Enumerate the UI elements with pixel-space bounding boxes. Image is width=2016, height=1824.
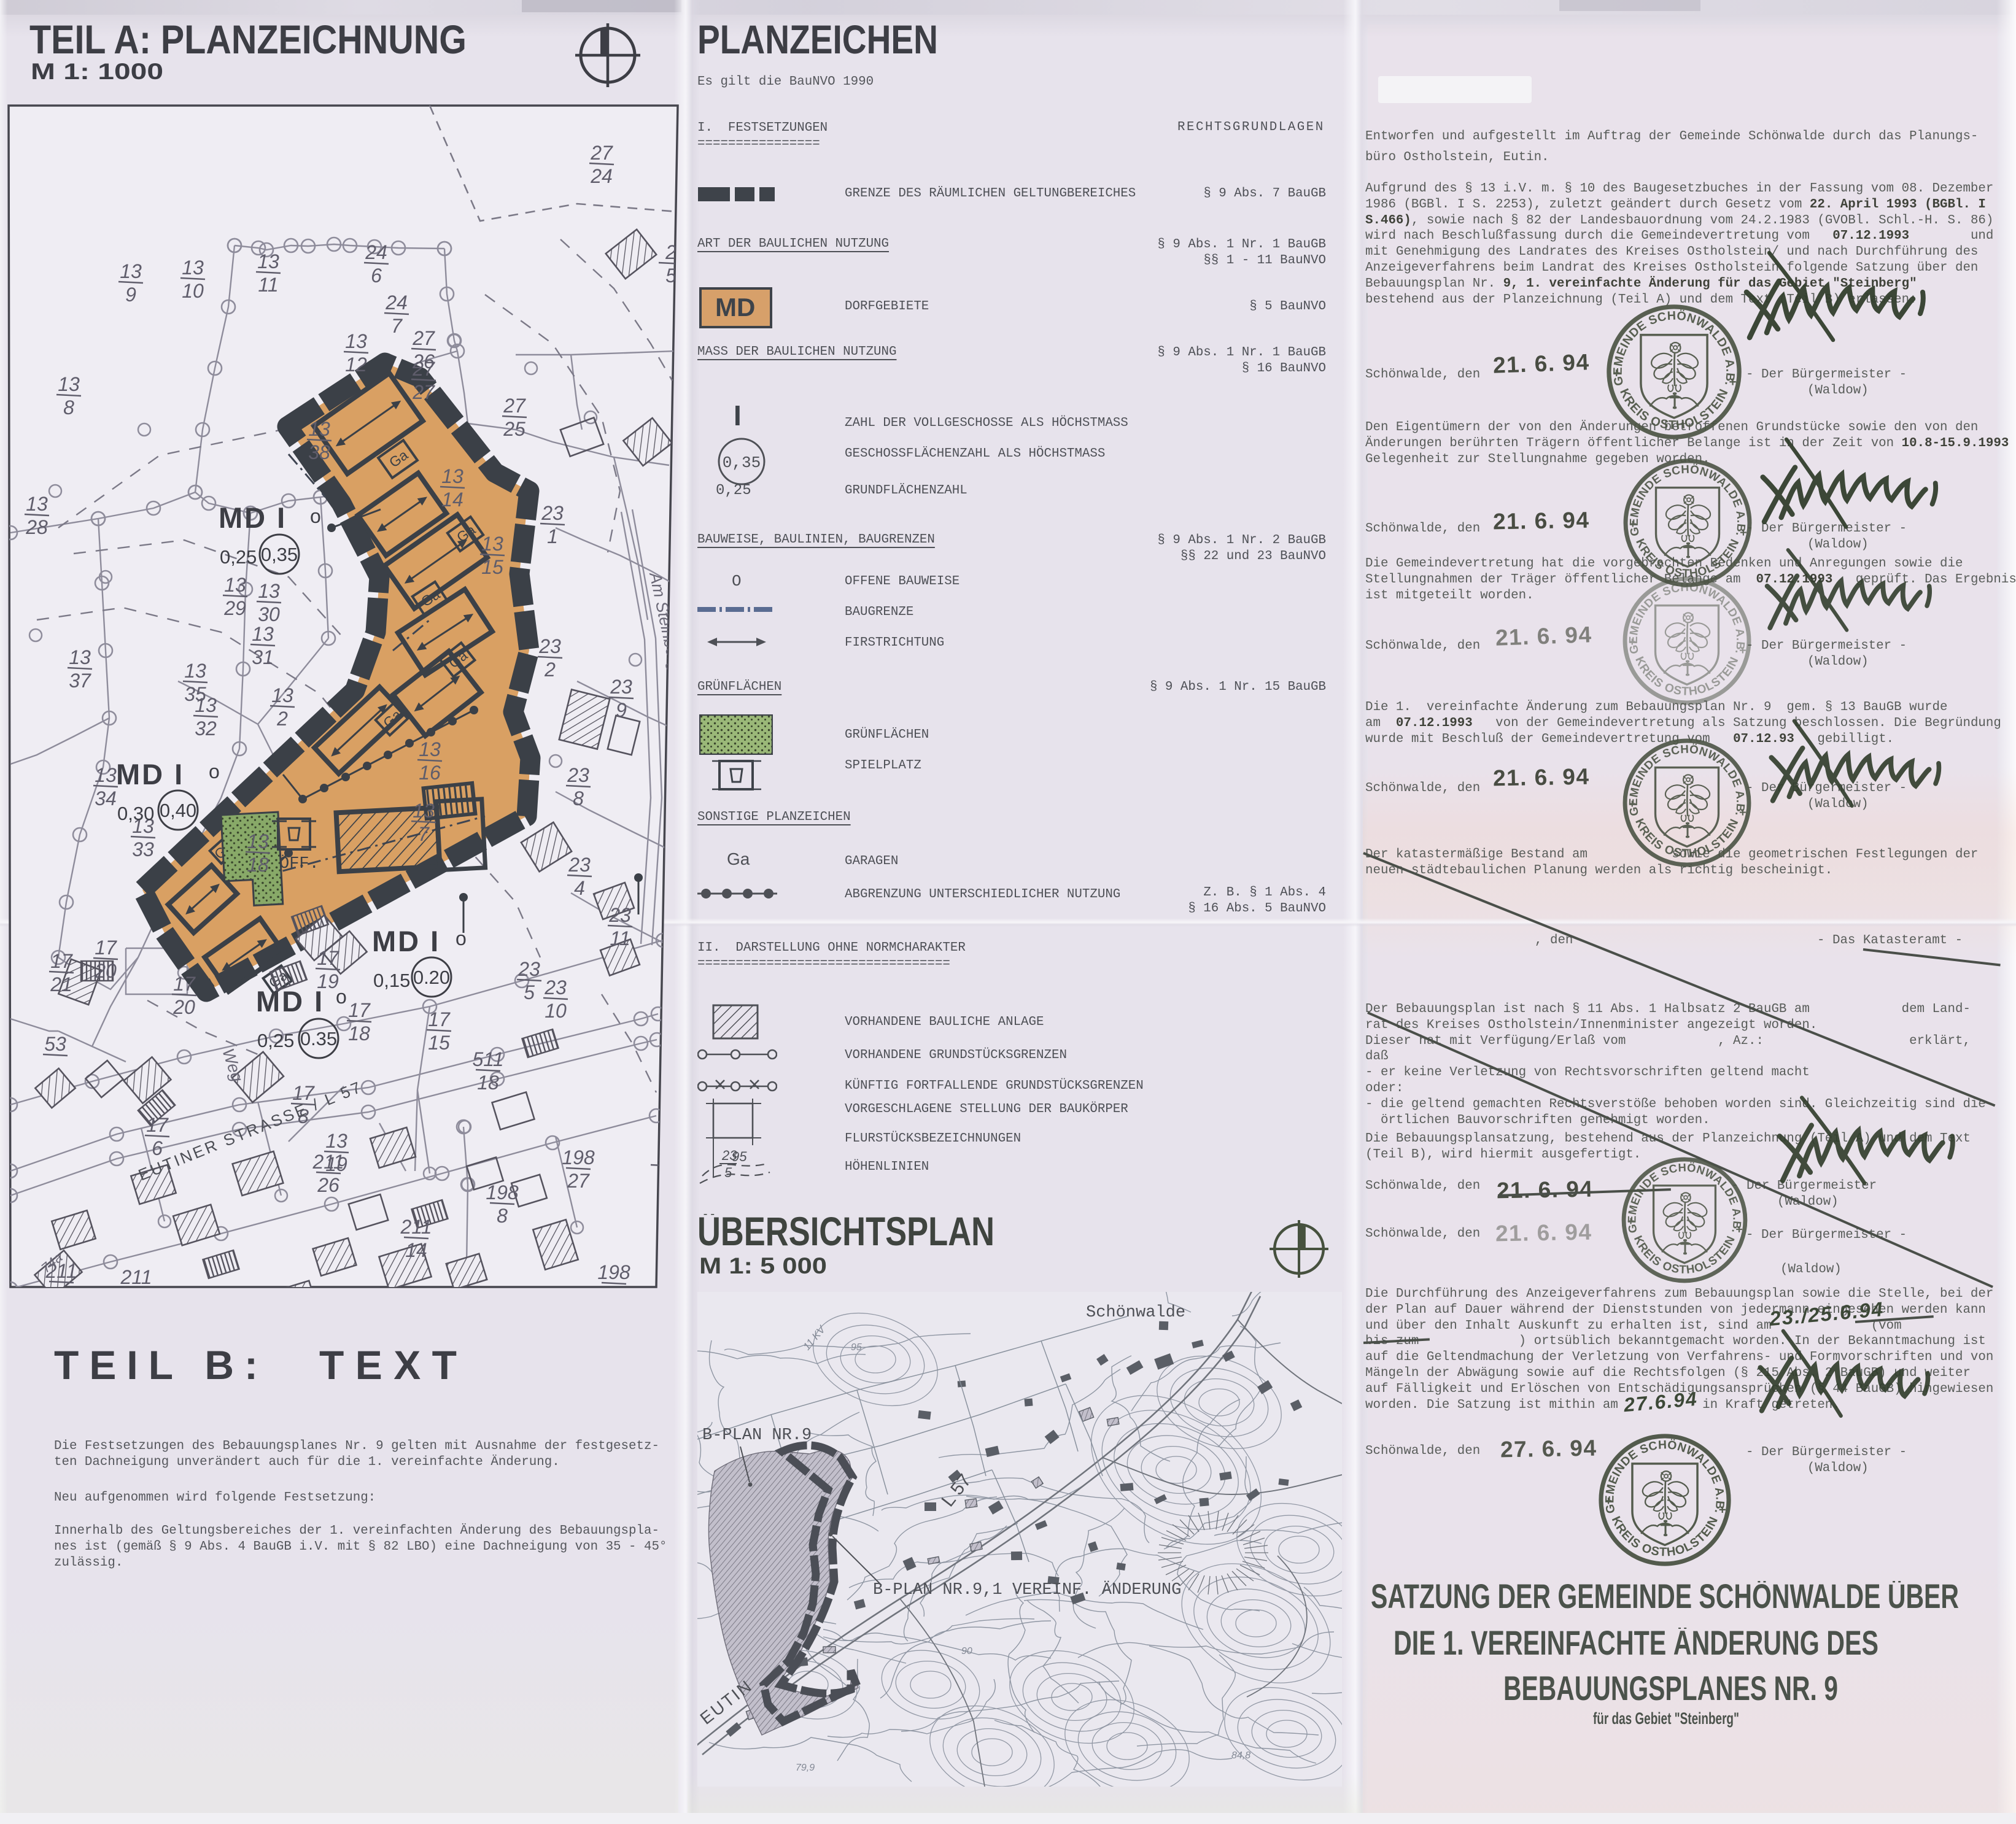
svg-text:BEBAUUNGSPLANES NR. 9: BEBAUUNGSPLANES NR. 9 <box>1503 1673 1838 1707</box>
svg-text:53: 53 <box>44 1033 66 1055</box>
svg-text:511: 511 <box>472 1048 503 1070</box>
svg-text:30: 30 <box>258 603 280 625</box>
svg-text:6: 6 <box>152 1137 163 1159</box>
svg-text:2: 2 <box>276 708 288 730</box>
svg-text:38: 38 <box>308 441 330 463</box>
svg-text:84,8: 84,8 <box>1231 1750 1250 1761</box>
svg-text:13: 13 <box>308 418 330 440</box>
svg-text:MD I: MD I <box>116 758 184 790</box>
svg-text:1: 1 <box>547 525 558 547</box>
svg-text:o: o <box>336 986 347 1008</box>
svg-text:27: 27 <box>412 358 435 380</box>
svg-text:M 1: 5 000: M 1: 5 000 <box>699 1256 827 1278</box>
svg-text:MD I: MD I <box>372 925 440 957</box>
svg-text:o: o <box>209 760 220 783</box>
svg-text:PLANZEICHEN: PLANZEICHEN <box>697 22 938 62</box>
svg-text:9: 9 <box>125 284 136 306</box>
svg-text:28: 28 <box>125 1289 147 1293</box>
svg-text:18: 18 <box>348 1022 370 1045</box>
svg-text:23: 23 <box>538 635 561 657</box>
svg-text:0,40: 0,40 <box>160 800 196 821</box>
svg-text:TEXT: TEXT <box>319 1348 457 1388</box>
svg-text:DIE 1. VEREINFACHTE ÄNDERUNG: DIE 1. VEREINFACHTE ÄNDERUNG DES <box>1394 1628 1878 1662</box>
svg-text:0,35: 0,35 <box>723 454 761 472</box>
svg-text:95: 95 <box>851 1342 862 1353</box>
svg-text:17: 17 <box>348 999 371 1021</box>
svg-text:2: 2 <box>544 659 556 681</box>
svg-text:23: 23 <box>610 676 632 698</box>
svg-text:10: 10 <box>545 1000 567 1022</box>
svg-text:27: 27 <box>590 142 613 164</box>
svg-text:23: 23 <box>568 854 591 876</box>
svg-text:0,25: 0,25 <box>257 1030 294 1051</box>
svg-text:2: 2 <box>665 241 677 263</box>
svg-text:13: 13 <box>26 493 48 515</box>
svg-text:15: 15 <box>603 1285 625 1293</box>
svg-text:95: 95 <box>732 1151 747 1164</box>
svg-text:90: 90 <box>961 1646 972 1656</box>
svg-text:13: 13 <box>345 330 367 352</box>
svg-text:o: o <box>310 505 321 527</box>
svg-text:0.35: 0.35 <box>300 1028 337 1049</box>
svg-text:13: 13 <box>258 580 280 602</box>
svg-text:23: 23 <box>541 502 564 524</box>
svg-text:13: 13 <box>58 373 80 395</box>
svg-text:211: 211 <box>120 1266 152 1288</box>
svg-text:198: 198 <box>486 1181 519 1204</box>
svg-text:5: 5 <box>524 981 535 1003</box>
svg-text:4: 4 <box>574 877 585 899</box>
svg-text:25: 25 <box>503 418 525 440</box>
svg-text:19: 19 <box>325 1153 347 1175</box>
svg-text:6: 6 <box>371 265 382 287</box>
svg-text:11: 11 <box>258 274 278 296</box>
svg-text:o: o <box>456 927 467 949</box>
svg-text:M 1: 1000: M 1: 1000 <box>31 61 163 84</box>
svg-text:13: 13 <box>224 574 246 596</box>
svg-text:0,30: 0,30 <box>117 803 154 824</box>
svg-text:ÜBERSICHTSPLAN: ÜBERSICHTSPLAN <box>697 1214 994 1254</box>
svg-text:SATZUNG DER GEMEINDE SCHÖNWALD: SATZUNG DER GEMEINDE SCHÖNWALDE ÜBER <box>1371 1581 1959 1615</box>
svg-text:13: 13 <box>325 1130 347 1152</box>
svg-text:B-PLAN NR.9: B-PLAN NR.9 <box>702 1426 812 1445</box>
svg-text:198: 198 <box>562 1146 595 1169</box>
svg-text:24: 24 <box>365 241 387 263</box>
svg-text:17: 17 <box>50 950 73 972</box>
svg-text:20: 20 <box>94 960 117 982</box>
svg-text:B-PLAN NR.9,1 VEREINF. ÄNDERUN: B-PLAN NR.9,1 VEREINF. ÄNDERUNG <box>873 1580 1181 1599</box>
svg-text:17: 17 <box>317 947 339 969</box>
svg-text:23: 23 <box>518 958 540 980</box>
svg-text:18: 18 <box>247 854 269 876</box>
svg-text:33: 33 <box>132 838 154 860</box>
svg-text:28: 28 <box>25 516 48 538</box>
svg-text:23: 23 <box>608 904 631 926</box>
svg-text:24: 24 <box>590 165 613 187</box>
svg-text:34: 34 <box>95 787 117 810</box>
svg-text:27: 27 <box>567 1170 590 1192</box>
svg-text:13: 13 <box>247 830 269 852</box>
svg-text:13: 13 <box>257 250 279 272</box>
svg-text:37: 37 <box>69 670 91 692</box>
svg-text:für das Gebiet "Steinberg": für das Gebiet "Steinberg" <box>1593 1711 1739 1728</box>
svg-text:17: 17 <box>173 973 196 995</box>
svg-text:13: 13 <box>95 764 117 786</box>
svg-text:13: 13 <box>195 694 217 716</box>
svg-text:31: 31 <box>252 646 274 668</box>
svg-text:15: 15 <box>428 1032 450 1054</box>
svg-text:23: 23 <box>544 976 567 999</box>
svg-text:12: 12 <box>345 354 367 376</box>
svg-text:Schönwalde: Schönwalde <box>1086 1304 1185 1322</box>
svg-text:ÖFF.: ÖFF. <box>279 854 319 873</box>
svg-text:13: 13 <box>184 660 206 682</box>
svg-text:9: 9 <box>616 699 627 721</box>
svg-text:24: 24 <box>385 292 408 314</box>
svg-text:8: 8 <box>497 1205 508 1227</box>
svg-text:18: 18 <box>477 1072 499 1094</box>
svg-text:0,15: 0,15 <box>373 970 410 991</box>
svg-text:27: 27 <box>412 327 435 349</box>
svg-text:32: 32 <box>195 717 217 740</box>
svg-text:21: 21 <box>50 973 72 995</box>
svg-text:17: 17 <box>95 937 117 959</box>
svg-text:TEIL B:: TEIL B: <box>54 1348 258 1388</box>
svg-text:29: 29 <box>223 597 246 619</box>
svg-text:0.20: 0.20 <box>413 967 450 988</box>
svg-text:7: 7 <box>391 315 403 337</box>
svg-text:14: 14 <box>405 1239 427 1261</box>
svg-text:13: 13 <box>182 257 204 279</box>
svg-text:13: 13 <box>69 646 91 668</box>
svg-text:16: 16 <box>419 762 441 784</box>
svg-text:13: 13 <box>441 465 463 487</box>
svg-text:8: 8 <box>573 787 584 810</box>
svg-text:13: 13 <box>120 260 142 282</box>
svg-text:17: 17 <box>428 1008 451 1030</box>
svg-text:27: 27 <box>412 381 435 403</box>
svg-text:11: 11 <box>610 927 630 949</box>
svg-text:MD I: MD I <box>219 501 287 534</box>
svg-text:TEIL A: PLANZEICHNUNG: TEIL A: PLANZEICHNUNG <box>29 22 467 62</box>
svg-text:26: 26 <box>317 1174 339 1196</box>
svg-text:15: 15 <box>481 556 503 578</box>
svg-text:13: 13 <box>481 533 503 555</box>
svg-text:13: 13 <box>413 800 435 822</box>
svg-text:8: 8 <box>63 396 74 419</box>
svg-text:23: 23 <box>567 764 589 786</box>
svg-text:13: 13 <box>271 684 293 706</box>
svg-text:7: 7 <box>418 823 430 845</box>
svg-text:13: 13 <box>419 738 441 760</box>
svg-text:17: 17 <box>146 1114 169 1136</box>
svg-text:MD I: MD I <box>256 985 324 1018</box>
svg-text:0,35: 0,35 <box>261 544 298 565</box>
svg-text:27: 27 <box>503 395 526 417</box>
svg-text:14: 14 <box>441 489 463 511</box>
svg-text:211: 211 <box>400 1216 432 1238</box>
svg-text:20: 20 <box>173 996 195 1018</box>
svg-text:0,25: 0,25 <box>220 546 257 568</box>
svg-text:79,9: 79,9 <box>796 1763 815 1773</box>
svg-text:10: 10 <box>182 280 204 302</box>
svg-text:198: 198 <box>597 1261 630 1283</box>
svg-text:13: 13 <box>252 623 274 645</box>
